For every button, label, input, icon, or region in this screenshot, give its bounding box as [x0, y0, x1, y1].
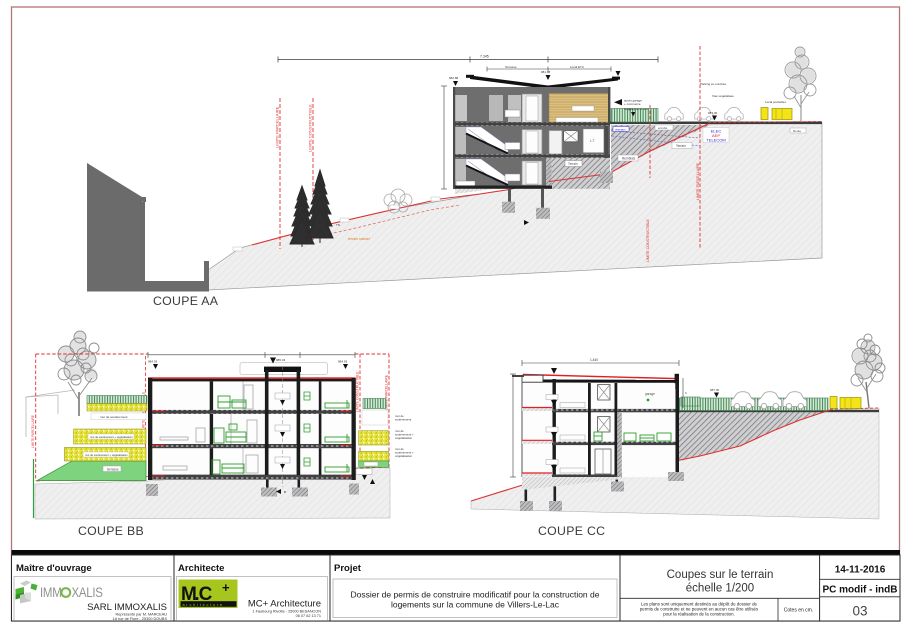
svg-text:981.98: 981.98 — [541, 70, 551, 74]
svg-text:soutènement: soutènement — [395, 418, 411, 422]
svg-text:LIMITE CONSTRUCTIBLE: LIMITE CONSTRUCTIBLE — [308, 104, 313, 152]
svg-text:1 Faubourg Rivotte - 25000 BES: 1 Faubourg Rivotte - 25000 BESANCON — [252, 610, 321, 614]
svg-text:1.440: 1.440 — [590, 358, 598, 362]
svg-text:L.T: L.T — [590, 139, 595, 143]
svg-text:COUPE AA: COUPE AA — [153, 294, 219, 308]
svg-text:LIMITE CONSTRUCTIBLE: LIMITE CONSTRUCTIBLE — [646, 218, 650, 262]
svg-text:PC modif - indB: PC modif - indB — [823, 585, 898, 596]
svg-text:terrasse: terrasse — [107, 468, 119, 472]
svg-text:+: + — [222, 580, 230, 595]
svg-text:IMM: IMM — [40, 585, 62, 600]
svg-text:végétalisation: végétalisation — [395, 454, 413, 458]
svg-text:COUPE BB: COUPE BB — [78, 524, 144, 538]
svg-text:Local poubelles: Local poubelles — [765, 100, 786, 104]
svg-text:Parking en enrobés: Parking en enrobés — [700, 82, 727, 86]
svg-text:987.30: 987.30 — [708, 111, 718, 115]
svg-text:Maître d'ouvrage: Maître d'ouvrage — [16, 563, 92, 574]
svg-text:TN: TN — [336, 223, 340, 227]
svg-text:mur de soutènement + végétalis: mur de soutènement + végétalisation — [90, 435, 133, 439]
svg-text:enrobé: enrobé — [658, 126, 668, 130]
svg-text:terrain naturel: terrain naturel — [348, 237, 370, 241]
svg-text:LIMITE PARCELLAIRE: LIMITE PARCELLAIRE — [275, 106, 280, 148]
svg-text:06 07 62 13 71: 06 07 62 13 71 — [296, 614, 321, 618]
svg-text:Dossier de permis de construir: Dossier de permis de construire modifica… — [351, 590, 600, 600]
svg-text:mur de soutènement + végétalis: mur de soutènement + végétalisation — [85, 453, 128, 457]
svg-text:XALIS: XALIS — [71, 585, 102, 600]
svg-text:MC+ Architecture: MC+ Architecture — [248, 599, 321, 610]
svg-text:Représenté par M. MARCEAU: Représenté par M. MARCEAU — [116, 613, 168, 617]
svg-text:Remblais: Remblais — [622, 157, 636, 161]
svg-text:architecture: architecture — [183, 603, 224, 607]
svg-text:Voie végétalisée: Voie végétalisée — [712, 94, 734, 98]
svg-text:982.88: 982.88 — [449, 76, 459, 80]
svg-text:987.30: 987.30 — [710, 388, 720, 392]
svg-text:LIMITE CONSTRUCTIBLE: LIMITE CONSTRUCTIBLE — [356, 371, 360, 412]
svg-text:LIMITE PARCELLAIRE: LIMITE PARCELLAIRE — [31, 415, 35, 448]
svg-text:réseaux: réseaux — [615, 128, 626, 132]
svg-text:984.93: 984.93 — [148, 360, 158, 364]
svg-text:COUPE CC: COUPE CC — [538, 524, 605, 538]
svg-text:mur de soutènement: mur de soutènement — [100, 415, 128, 419]
svg-text:logements sur la commune de Vi: logements sur la commune de Villers-Le-L… — [391, 600, 560, 610]
svg-text:TELECOM: TELECOM — [706, 138, 725, 143]
svg-text:Terrasse: Terrasse — [505, 65, 517, 69]
svg-text:pour la réalisation de la cons: pour la réalisation de la construction. — [663, 612, 735, 617]
svg-text:Cotes en cm.: Cotes en cm. — [784, 608, 813, 614]
svg-text:03: 03 — [852, 604, 867, 619]
svg-text:Terrain: Terrain — [676, 144, 686, 148]
svg-text:984.93: 984.93 — [338, 360, 348, 364]
svg-text:végétalisation: végétalisation — [395, 436, 413, 440]
svg-text:987.1: 987.1 — [628, 108, 636, 112]
svg-text:SARL IMMOXALIS: SARL IMMOXALIS — [87, 602, 167, 613]
svg-text:Route: Route — [793, 129, 801, 133]
svg-text:garage: garage — [645, 392, 655, 396]
svg-text:Projet: Projet — [334, 563, 362, 574]
svg-text:échelle 1/200: échelle 1/200 — [686, 583, 754, 595]
svg-text:Terrain: Terrain — [568, 162, 578, 166]
svg-text:7.345: 7.345 — [480, 55, 489, 59]
svg-text:LIMITE PARCELLAIRE: LIMITE PARCELLAIRE — [696, 162, 700, 200]
svg-text:14-11-2016: 14-11-2016 — [835, 565, 886, 576]
svg-text:985.43: 985.43 — [276, 358, 286, 362]
svg-text:Local ETC: Local ETC — [570, 65, 585, 69]
svg-text:1A rue de Flore - 25300 DOUBS: 1A rue de Flore - 25300 DOUBS — [113, 617, 168, 621]
svg-text:Coupes sur le terrain: Coupes sur le terrain — [667, 569, 774, 581]
svg-text:B: B — [284, 490, 286, 494]
svg-text:+ commerce: + commerce — [624, 102, 641, 106]
svg-text:Architecte: Architecte — [178, 563, 224, 574]
